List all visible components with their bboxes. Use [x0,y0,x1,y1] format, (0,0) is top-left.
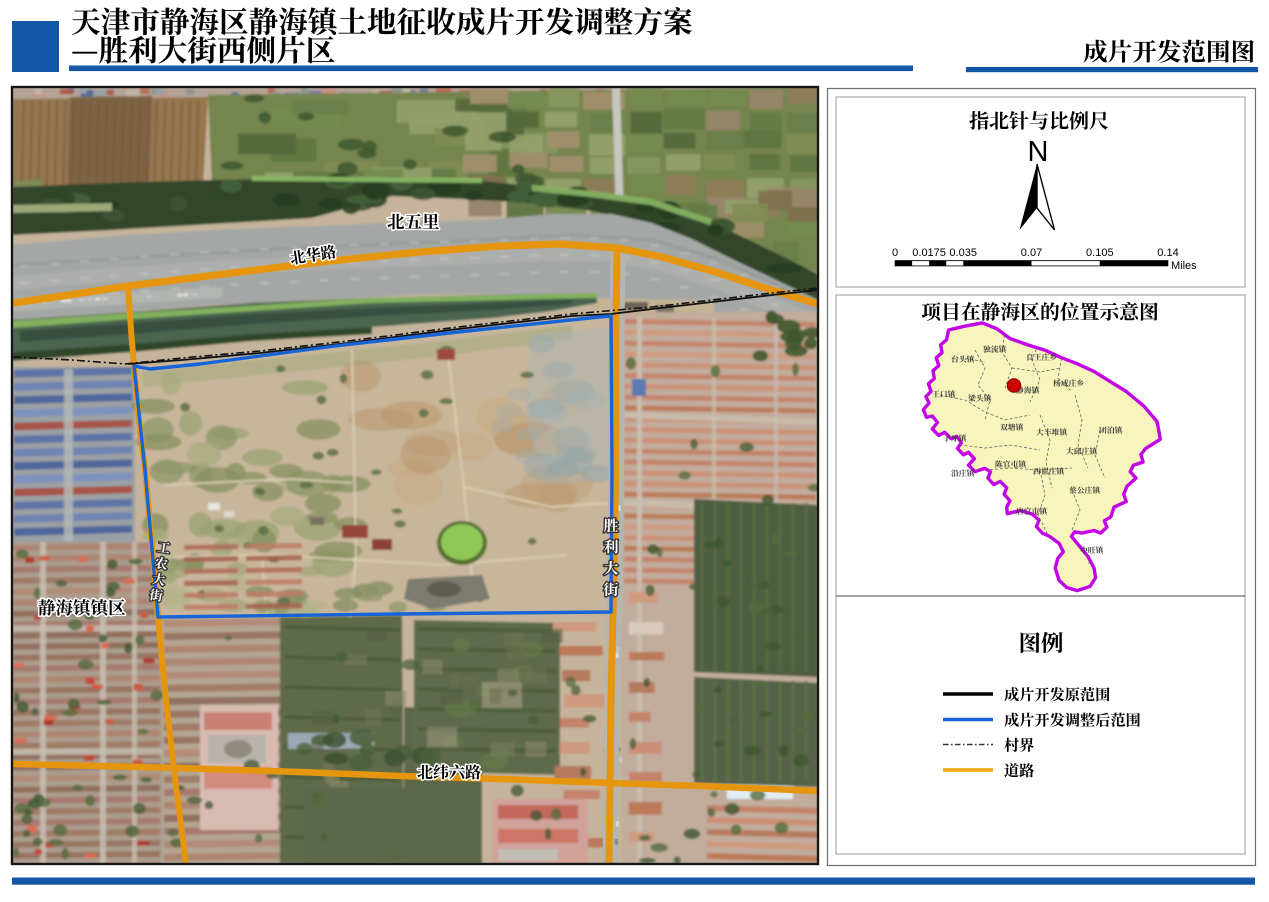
svg-text:0.0175: 0.0175 [912,247,946,259]
svg-text:Miles: Miles [1171,260,1197,272]
svg-text:0.035: 0.035 [949,247,977,259]
svg-text:0: 0 [892,247,898,259]
svg-text:0.07: 0.07 [1021,247,1042,259]
svg-text:0.105: 0.105 [1086,247,1114,259]
svg-text:0.14: 0.14 [1157,247,1178,259]
svg-text:N: N [1028,136,1049,168]
